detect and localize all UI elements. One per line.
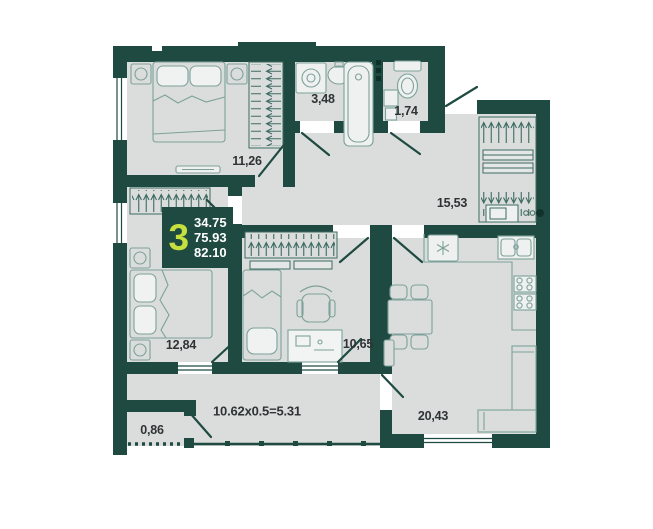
fridge-icon	[428, 235, 458, 261]
bathtub-icon	[344, 62, 373, 146]
tv-stand-icon	[176, 166, 220, 173]
single-bed-icon	[243, 270, 281, 360]
room-label-balcony: 10.62x0.5=5.31	[213, 404, 301, 419]
room-label-kitchen-living-room: 20,43	[418, 409, 448, 423]
floorplan-drawing	[0, 0, 653, 529]
room-label-bedroom-2: 12,84	[166, 338, 196, 352]
room-label-bedroom-1: 11,26	[232, 154, 262, 168]
kitchen-sink-icon	[498, 236, 534, 259]
room-label-wc: 1,74	[394, 104, 418, 118]
wardrobe-icon-bedroom-1	[249, 62, 283, 148]
unit-areas: 34.75 75.93 82.10	[194, 215, 227, 261]
unit-area-usable: 75.93	[194, 230, 227, 245]
room-label-bathroom: 3,48	[311, 92, 335, 106]
room-label-hallway: 15,53	[437, 196, 467, 210]
room-count: 3	[168, 219, 189, 256]
unit-area-total: 82.10	[194, 245, 227, 260]
desk-icon	[288, 330, 342, 362]
room-label-storage: 0,86	[140, 423, 164, 437]
room-label-kids-room: 10,65	[343, 337, 373, 351]
washing-machine-icon	[296, 63, 326, 93]
unit-area-living: 34.75	[194, 215, 227, 230]
floorplan-canvas: 3 34.75 75.93 82.10 11,26 3,48 1,74 15,5…	[0, 0, 653, 529]
unit-info-badge: 3 34.75 75.93 82.10	[162, 207, 233, 268]
